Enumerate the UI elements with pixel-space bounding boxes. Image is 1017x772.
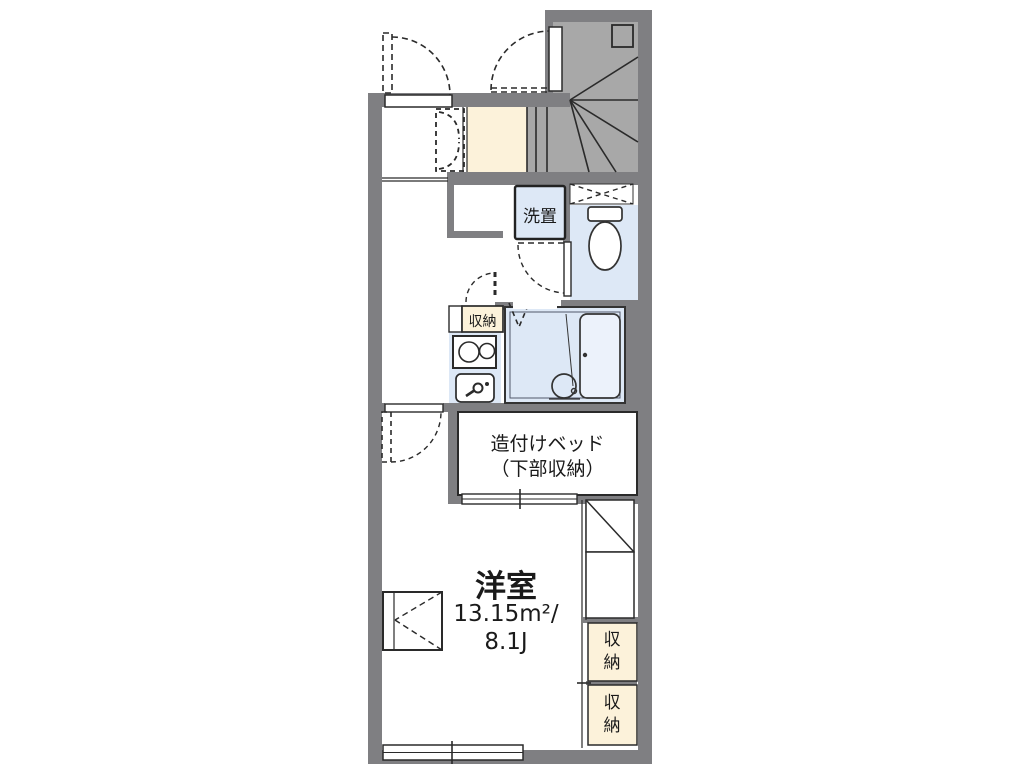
- kitchen-gap-box: [449, 306, 462, 332]
- entry-door-right-icon: [491, 31, 550, 92]
- kitchen-storage-label: 収納: [462, 311, 503, 331]
- entrance-step-lines: [382, 107, 467, 181]
- bed-label-line1: 造付けベッド: [458, 429, 637, 456]
- washer-label: 洗置: [515, 202, 565, 227]
- washroom-door-icon: [518, 242, 571, 296]
- stairs-post-icon: [612, 25, 633, 47]
- shoe-closet-bifold-icon: [436, 109, 464, 171]
- room-area-label: 13.15m²/: [426, 601, 586, 627]
- door-opening-top: [385, 95, 452, 107]
- toilet-window-icon: [570, 184, 633, 204]
- room-door-icon: [382, 404, 443, 462]
- room-name-label: 洋室: [426, 561, 586, 606]
- floor-plan: 洗置 収納 造付けベッド （下部収納） 洋室 13.15m²/ 8.1J 収納 …: [0, 0, 1017, 772]
- storage-upper-label: 収納: [602, 629, 622, 675]
- bottom-window-icon: [383, 741, 523, 764]
- stairs-treads-icon: [527, 57, 638, 172]
- room-size-label: 8.1J: [426, 629, 586, 655]
- stove-icon: [453, 336, 496, 368]
- sink-icon: [456, 374, 494, 402]
- door-panel-stairs: [549, 27, 562, 91]
- toilet-icon: [588, 207, 622, 270]
- bed-label-line2: （下部収納）: [458, 454, 637, 481]
- plan-linework: [0, 0, 1017, 772]
- counter-box-icon: [586, 500, 634, 618]
- kitchen-door-icon: [466, 272, 495, 302]
- bathroom: [505, 303, 625, 403]
- entry-door-left-icon: [383, 33, 450, 95]
- storage-lower-label: 収納: [602, 692, 622, 738]
